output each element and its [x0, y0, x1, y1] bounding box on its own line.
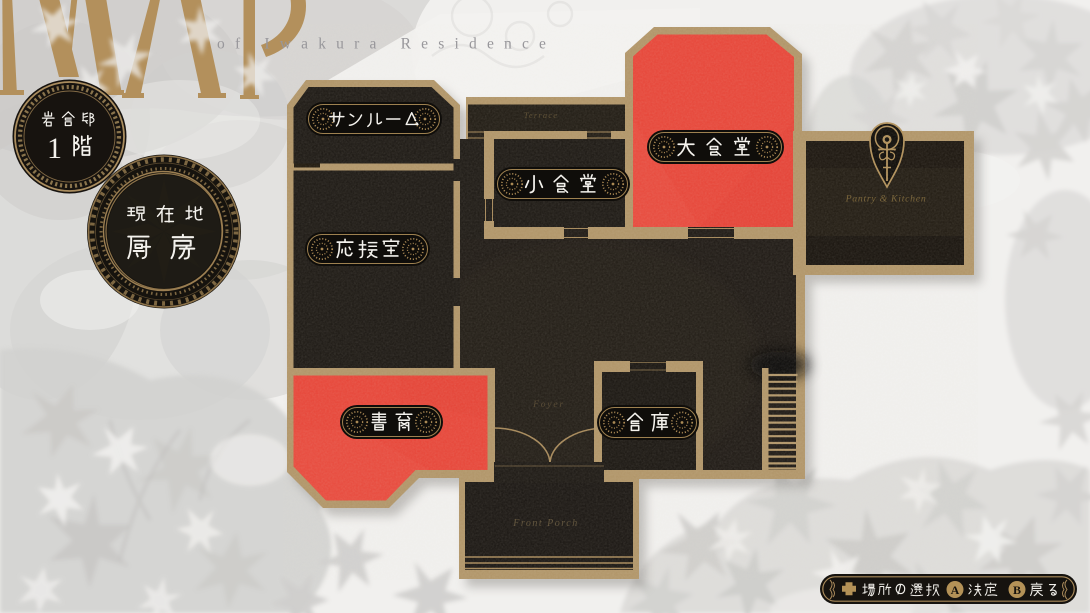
svg-text:of Iwakura Residence: of Iwakura Residence [217, 36, 556, 53]
svg-text:A: A [951, 583, 960, 597]
svg-text:B: B [1013, 583, 1021, 597]
svg-text:1: 1 [47, 132, 62, 165]
